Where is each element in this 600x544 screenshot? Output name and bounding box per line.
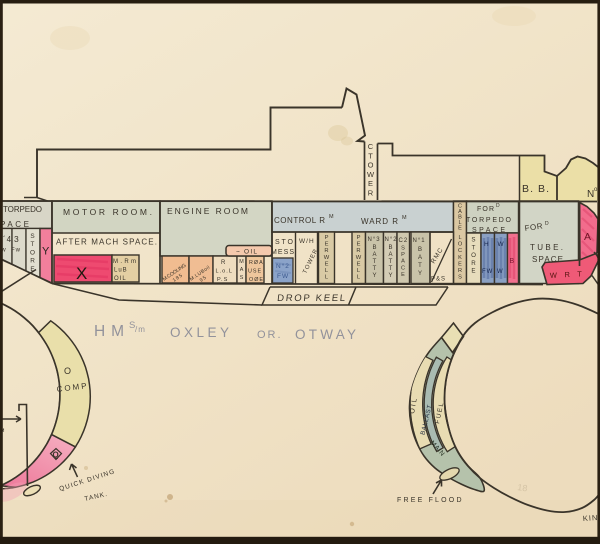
svg-text:P: P [401,252,405,258]
svg-text:C: C [401,265,405,271]
svg-text:OIL: OIL [114,276,127,282]
svg-text:O: O [64,366,71,376]
svg-text:OØE: OØE [249,277,264,283]
svg-text:CONTROL R: CONTROL R [274,216,326,225]
svg-text:~ OIL: ~ OIL [236,249,258,256]
svg-text:T: T [389,259,393,265]
svg-text:R: R [356,248,360,254]
svg-text:LuB: LuB [114,268,128,274]
svg-text:18: 18 [517,482,528,493]
svg-text:FW: FW [482,269,493,275]
svg-text:W R T: W R T [550,269,583,280]
svg-text:FOR: FOR [477,206,495,213]
svg-text:SPACE: SPACE [472,227,506,234]
svg-text:USE: USE [248,269,262,275]
svg-text:M: M [402,215,408,221]
svg-text:O: O [471,252,476,259]
svg-text:C2: C2 [399,238,409,244]
svg-text:O: O [458,242,463,248]
svg-text:R: R [324,248,328,254]
svg-text:P: P [325,235,329,241]
svg-text:E: E [325,261,329,267]
svg-text:B: B [510,258,516,265]
svg-text:E: E [368,179,373,188]
svg-text:W/H: W/H [299,238,315,245]
svg-text:OTWAY: OTWAY [295,327,359,342]
svg-text:N°3: N°3 [368,237,381,243]
svg-text:A: A [372,252,376,258]
svg-text:A: A [401,259,405,265]
svg-text:T: T [31,241,35,248]
svg-text:O: O [30,249,35,256]
svg-text:W: W [356,255,362,261]
svg-text:A: A [388,252,392,258]
svg-text:´4: ´4 [3,235,12,244]
svg-text:TUBE.: TUBE. [530,243,564,252]
svg-text:RØA: RØA [249,260,264,266]
svg-text:E: E [357,261,361,267]
svg-text:A: A [240,267,244,273]
svg-text:R: R [458,268,462,274]
svg-text:R: R [368,189,374,198]
svg-text:A: A [418,255,422,261]
svg-text:S: S [458,275,462,281]
svg-text:S: S [30,233,34,240]
svg-text:N°2: N°2 [276,262,290,270]
svg-text:Y: Y [418,271,422,277]
svg-text:L: L [458,235,461,241]
svg-text:/m: /m [135,325,146,334]
svg-text:P&S: P&S [431,277,446,283]
svg-text:STO: STO [275,239,294,246]
svg-text:SPACE: SPACE [532,255,564,264]
svg-text:W: W [367,170,375,179]
svg-text:P: P [357,235,361,241]
svg-text:OXLEY: OXLEY [170,325,232,340]
svg-text:X: X [76,264,87,283]
svg-text:E: E [458,226,462,232]
svg-text:FW: FW [277,273,289,280]
svg-text:D: D [544,220,550,227]
svg-text:W: W [498,241,505,248]
svg-text:M.Rm: M.Rm [113,259,137,265]
svg-text:MESS: MESS [271,249,295,256]
svg-text:B: B [388,245,392,251]
svg-text:MOTOR ROOM.: MOTOR ROOM. [63,207,153,217]
svg-text:E: E [401,272,405,278]
svg-text:O: O [368,161,374,170]
svg-text:B: B [418,247,422,253]
svg-text:E: E [458,261,462,267]
svg-text:L.o.L: L.o.L [216,269,233,275]
svg-text:TORPEDO: TORPEDO [3,205,43,214]
svg-text:Y: Y [388,273,392,279]
svg-text:K: K [458,255,462,261]
svg-text:C: C [368,142,374,151]
svg-text:OR.: OR. [257,329,283,341]
svg-text:A: A [584,231,592,243]
svg-text:M: M [329,214,335,220]
svg-text:B: B [372,245,376,251]
svg-text:T: T [373,259,377,265]
svg-text:E: E [471,268,475,275]
svg-text:SPACE: SPACE [0,220,30,229]
svg-text:KIN: KIN [583,513,599,523]
svg-text:WARD R: WARD R [361,217,399,226]
svg-text:T: T [373,266,377,272]
svg-text:W: W [324,255,330,261]
svg-text:T: T [368,151,373,160]
svg-text:T: T [389,266,393,272]
svg-text:T: T [472,244,476,251]
svg-text:ENGINE ROOM: ENGINE ROOM [167,206,249,216]
svg-text:N°2: N°2 [385,237,398,243]
svg-text:P.S: P.S [217,277,228,283]
svg-text:E: E [357,242,361,248]
svg-text:TORPEDO: TORPEDO [466,217,512,224]
svg-text:AFTER MACH SPACE.: AFTER MACH SPACE. [56,238,158,247]
svg-text:Y: Y [372,273,376,279]
svg-text:D: D [496,203,501,209]
svg-text:S: S [240,275,244,281]
svg-text:E: E [325,242,329,248]
svg-text:3: 3 [14,234,20,244]
svg-text:Y: Y [42,246,50,258]
svg-text:R: R [471,260,476,267]
svg-text:B. B.: B. B. [522,183,550,195]
svg-text:C: C [458,248,462,254]
svg-text:T: T [418,263,422,269]
svg-text:R: R [221,260,226,266]
svg-text:E: E [30,266,34,273]
svg-text:R: R [30,258,35,265]
svg-text:Fw: Fw [11,248,21,254]
svg-text:DROP KEEL: DROP KEEL [277,293,348,304]
svg-text:N°1: N°1 [413,238,426,244]
svg-text:H: H [484,241,490,248]
svg-text:W: W [497,269,504,275]
svg-text:M: M [239,259,244,265]
svg-text:S: S [401,246,405,252]
svg-text:FREE FLOOD: FREE FLOOD [397,497,463,504]
svg-text:S: S [471,237,475,244]
